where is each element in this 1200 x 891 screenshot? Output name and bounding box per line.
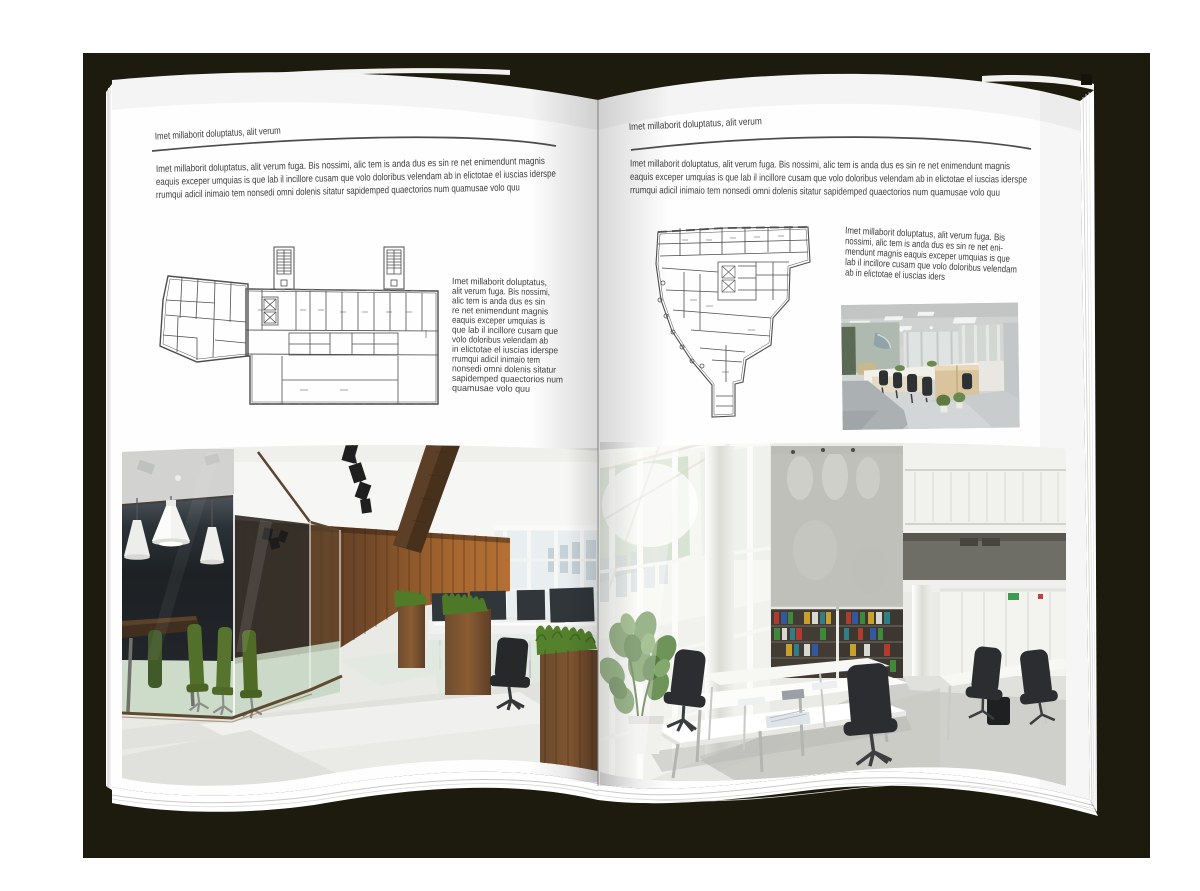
svg-text:quamusae volo quu: quamusae volo quu [452, 383, 530, 394]
